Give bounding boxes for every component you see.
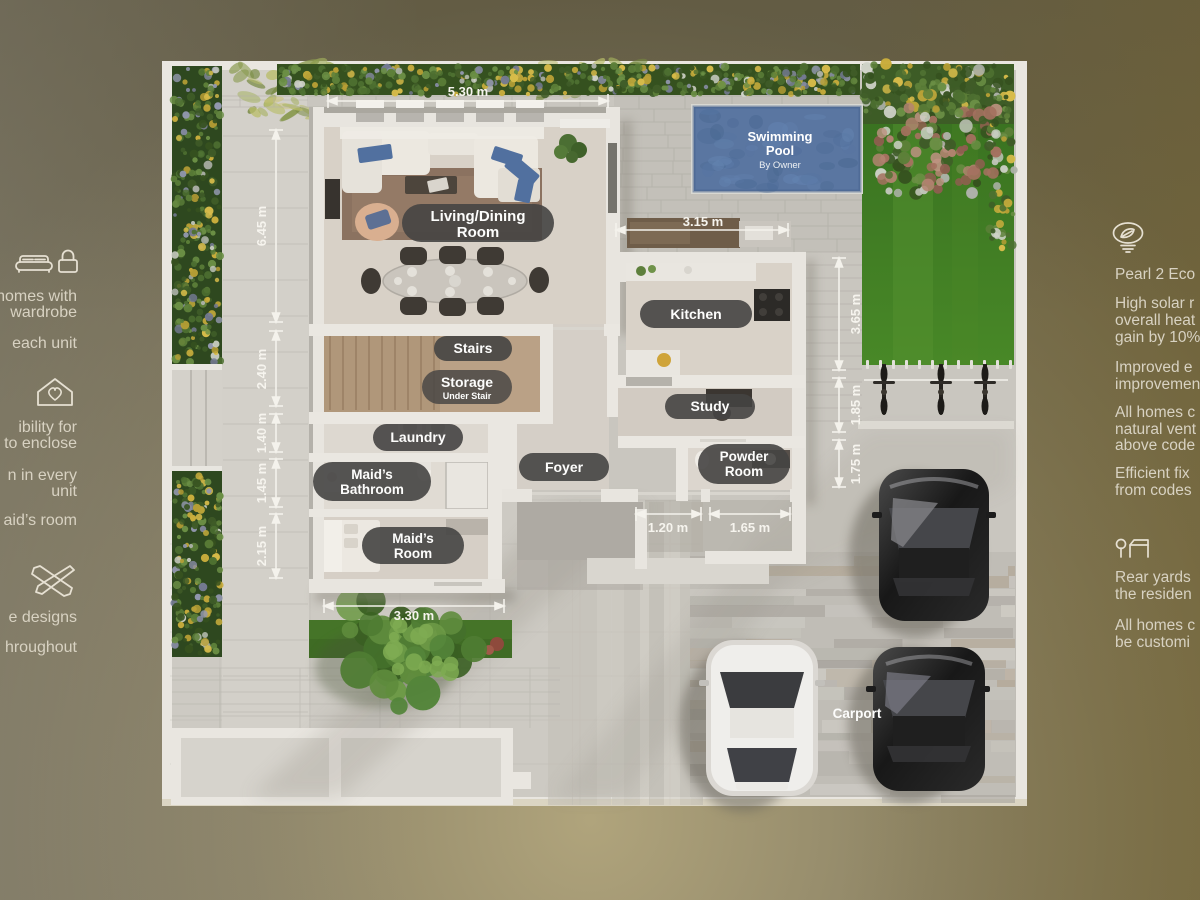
svg-text:2.15 m: 2.15 m: [254, 526, 269, 566]
svg-text:overall heat: overall heat: [1115, 312, 1196, 329]
svg-text:Rear yards: Rear yards: [1115, 569, 1191, 586]
svg-text:Room: Room: [725, 464, 763, 479]
svg-text:5.30 m: 5.30 m: [448, 84, 488, 99]
svg-text:Living/Dining: Living/Dining: [431, 208, 526, 225]
svg-text:All homes c: All homes c: [1115, 404, 1195, 421]
svg-text:Study: Study: [691, 398, 730, 414]
svg-text:aid’s room: aid’s room: [3, 512, 77, 529]
svg-text:be customi: be customi: [1115, 634, 1190, 651]
svg-text:from codes: from codes: [1115, 482, 1192, 499]
svg-text:Laundry: Laundry: [390, 429, 445, 445]
svg-text:1.20 m: 1.20 m: [648, 520, 688, 535]
svg-text:Maid’s: Maid’s: [351, 467, 393, 482]
svg-text:Room: Room: [394, 546, 432, 561]
svg-text:Under Stair: Under Stair: [443, 391, 492, 401]
svg-text:Room: Room: [457, 224, 500, 241]
svg-text:each unit: each unit: [12, 335, 77, 352]
svg-text:to enclose: to enclose: [4, 435, 77, 452]
svg-text:1.75 m: 1.75 m: [848, 444, 863, 484]
svg-text:homes with: homes with: [0, 288, 77, 305]
svg-text:3.65 m: 3.65 m: [848, 294, 863, 334]
svg-text:Bathroom: Bathroom: [340, 482, 404, 497]
svg-text:Foyer: Foyer: [545, 459, 584, 475]
svg-text:3.30 m: 3.30 m: [394, 608, 434, 623]
svg-text:e designs: e designs: [9, 609, 78, 626]
svg-text:Pearl 2 Eco: Pearl 2 Eco: [1115, 266, 1195, 283]
svg-text:6.45 m: 6.45 m: [254, 206, 269, 246]
svg-text:improvemen: improvemen: [1115, 376, 1200, 393]
svg-text:1.65 m: 1.65 m: [730, 520, 770, 535]
svg-text:Carport: Carport: [833, 706, 882, 721]
svg-text:hroughout: hroughout: [5, 639, 78, 656]
svg-text:All homes c: All homes c: [1115, 617, 1195, 634]
svg-text:natural vent: natural vent: [1115, 421, 1197, 438]
svg-text:1.85 m: 1.85 m: [848, 385, 863, 425]
svg-text:unit: unit: [51, 483, 77, 500]
svg-text:the residen: the residen: [1115, 586, 1192, 603]
svg-text:Pool: Pool: [766, 143, 794, 158]
svg-text:gain by 10%: gain by 10%: [1115, 329, 1200, 346]
svg-text:wardrobe: wardrobe: [9, 304, 77, 321]
svg-text:By Owner: By Owner: [759, 160, 801, 171]
svg-text:High solar r: High solar r: [1115, 295, 1194, 312]
svg-text:Kitchen: Kitchen: [670, 306, 721, 322]
svg-text:n in every: n in every: [8, 467, 77, 484]
svg-text:Maid’s: Maid’s: [392, 531, 434, 546]
svg-text:Efficient fix: Efficient fix: [1115, 465, 1190, 482]
svg-text:Powder: Powder: [720, 449, 770, 464]
svg-text:Swimming: Swimming: [747, 129, 812, 144]
svg-text:above code: above code: [1115, 437, 1195, 454]
svg-text:2.40 m: 2.40 m: [254, 349, 269, 389]
svg-text:Storage: Storage: [441, 374, 493, 390]
svg-text:3.15 m: 3.15 m: [683, 214, 723, 229]
svg-text:Improved e: Improved e: [1115, 359, 1193, 376]
svg-text:Stairs: Stairs: [454, 340, 493, 356]
svg-text:1.40 m: 1.40 m: [254, 413, 269, 453]
svg-text:ibility for: ibility for: [18, 419, 77, 436]
svg-text:1.45 m: 1.45 m: [254, 463, 269, 503]
